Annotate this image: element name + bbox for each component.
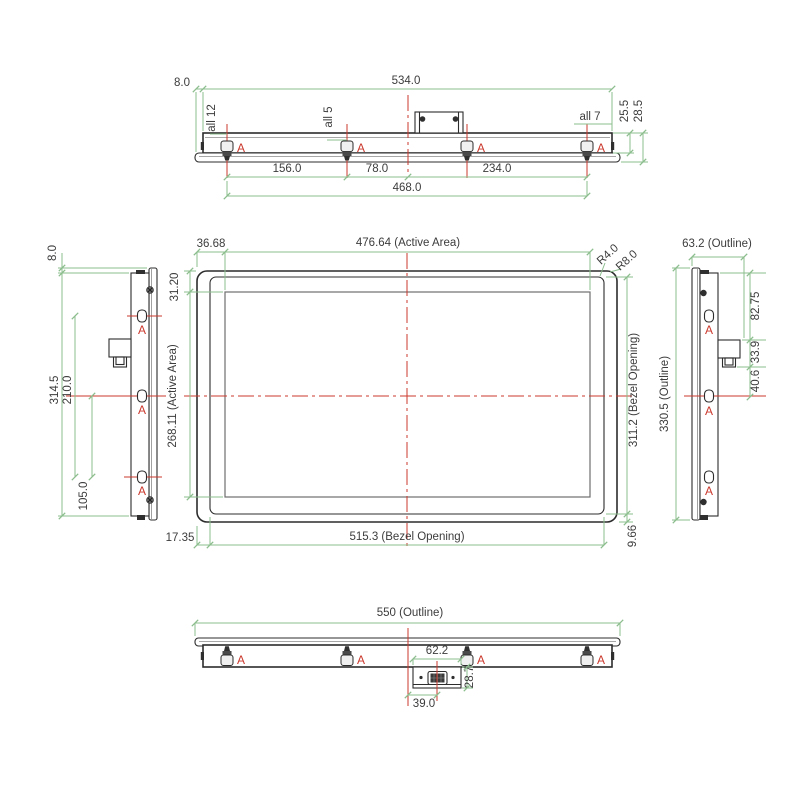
edge-clip <box>700 270 709 274</box>
edge-clip <box>611 142 614 150</box>
dim-conn-to-center: 40.6 <box>750 370 762 392</box>
datum-label: A <box>597 653 605 667</box>
dim-offset: 8.0 <box>47 245 59 261</box>
dim-depth-outer: 28.5 <box>633 100 645 122</box>
top-view-rear-connector <box>415 112 463 133</box>
edge-clip <box>201 652 204 660</box>
datum-label: A <box>705 404 713 418</box>
datum-label: A <box>357 141 365 155</box>
dim-conn-width: 62.2 <box>426 645 448 657</box>
dim-overall-width: 550 (Outline) <box>377 607 444 619</box>
edge-clip <box>136 270 145 274</box>
dim-margin-top: 31.20 <box>169 273 181 302</box>
right-side-view: A A A 63.2 (Outline) 330.5 (Outline) 82.… <box>659 238 766 520</box>
edge-clip <box>137 515 145 520</box>
left-side-view: A A A 8.0 314.5 210.0 105.0 <box>47 245 166 520</box>
dim-bezel-to-edge: 9.66 <box>627 525 639 547</box>
side-screw <box>700 290 706 296</box>
dim-holes-mid: all 5 <box>323 106 335 127</box>
dim-pitch-upper: 210.0 <box>62 376 74 405</box>
dim-depth: 63.2 (Outline) <box>682 238 752 250</box>
left-view-connector <box>109 339 131 367</box>
dim-holes-left: all 12 <box>206 104 218 132</box>
top-view: A A A A 8.0 534.0 all 12 a <box>174 75 648 196</box>
datum-label: A <box>477 141 485 155</box>
dimension-drawing: A A A A 8.0 534.0 all 12 a <box>0 0 800 800</box>
dim-margin-left: 36.68 <box>197 238 226 250</box>
datum-label: A <box>138 403 146 417</box>
dim-bezel-height: 311.2 (Bezel Opening) <box>628 333 640 447</box>
dim-pitch-lower: 105.0 <box>78 482 90 511</box>
edge-clip <box>201 142 204 150</box>
dim-depth-inner: 25.5 <box>619 100 631 122</box>
datum-label: A <box>138 323 146 337</box>
datum-label: A <box>138 484 146 498</box>
drawing-canvas: A A A A 8.0 534.0 all 12 a <box>0 0 800 800</box>
side-screw <box>147 287 154 294</box>
datum-label: A <box>237 653 245 667</box>
datum-label: A <box>477 653 485 667</box>
dim-margin-bottom: 17.35 <box>166 532 195 544</box>
datum-label: A <box>705 484 713 498</box>
datum-label: A <box>705 323 713 337</box>
side-screw <box>147 497 154 504</box>
dim-conn-height: 33.9 <box>750 341 762 363</box>
dim-conn-from-top: 82.75 <box>750 292 762 321</box>
dim-active-height: 268.11 (Active Area) <box>167 344 179 448</box>
dim-pitch-3: 234.0 <box>483 163 512 175</box>
left-view-dimension-texts: 8.0 314.5 210.0 105.0 <box>47 245 90 510</box>
dim-overall-height: 314.5 <box>49 376 61 405</box>
side-screw <box>700 499 706 505</box>
datum-label: A <box>237 141 245 155</box>
dim-overall-height: 330.5 (Outline) <box>659 356 671 432</box>
front-view: 36.68 476.64 (Active Area) R4.0 R8.0 31.… <box>166 237 640 549</box>
dim-pitch-2: 78.0 <box>366 163 388 175</box>
dim-pitch-1: 156.0 <box>273 163 302 175</box>
dim-overall-width: 534.0 <box>392 75 421 87</box>
dim-bezel-width: 515.3 (Bezel Opening) <box>349 531 464 543</box>
edge-clip <box>611 652 614 660</box>
dim-holes-right: all 7 <box>579 111 600 123</box>
dim-conn-offset: 39.0 <box>413 698 435 710</box>
right-view-connector <box>718 340 740 367</box>
edge-clip <box>700 515 708 520</box>
datum-label: A <box>357 653 365 667</box>
dim-offset: 8.0 <box>174 77 190 89</box>
datum-label: A <box>597 141 605 155</box>
dim-pitch-total: 468.0 <box>393 182 422 194</box>
bottom-view: A A A A <box>195 607 620 710</box>
dim-active-width: 476.64 (Active Area) <box>356 237 460 249</box>
